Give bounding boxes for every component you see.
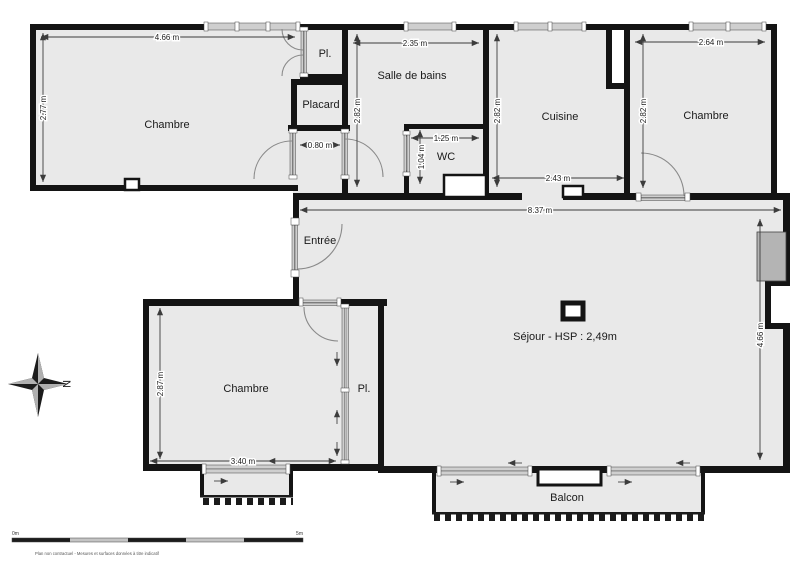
dim-sdb-width: 2.35 m [403, 39, 428, 48]
footer-disclaimer: Plan non contractuel - Mesures et surfac… [35, 551, 160, 556]
label-closet-top: Pl. [319, 48, 332, 60]
dim-chambre-tl-width: 4.66 m [155, 33, 180, 42]
compass: N [8, 353, 72, 417]
label-salle-de-bains: Salle de bains [377, 70, 447, 82]
wc-sliding-door [403, 131, 410, 176]
sdb-floor [346, 27, 486, 197]
scale-end-label: 5m [296, 531, 303, 537]
dim-sdb-height: 2.82 m [353, 98, 362, 123]
dim-cuisine-height: 2.82 m [493, 98, 502, 123]
label-cuisine: Cuisine [542, 111, 579, 123]
small-balcony-floor [202, 471, 293, 497]
window-chambre-tl [204, 22, 300, 31]
scale-start-label: 0m [12, 531, 19, 537]
dim-chambre-tr-width: 2.64 m [699, 38, 724, 47]
radiator [757, 232, 786, 281]
label-closet-bl: Pl. [358, 383, 371, 395]
label-placard: Placard [302, 99, 339, 111]
floor-plan: 4.66 m 2.77 m 0.80 m 2.35 m 2.82 m 1.25 … [0, 0, 800, 566]
label-sejour: Séjour - HSP : 2,49m [513, 331, 617, 343]
dim-wc-width: 1.25 m [434, 134, 459, 143]
label-balcon: Balcon [550, 492, 584, 504]
chambre-tl-chimney [125, 179, 139, 190]
label-chambre-tr: Chambre [683, 110, 728, 122]
dim-wc-height: 1.04 m [417, 144, 426, 169]
dim-cuisine-width: 2.43 m [546, 174, 571, 183]
floor-plan-page: 4.66 m 2.77 m 0.80 m 2.35 m 2.82 m 1.25 … [0, 0, 800, 566]
sejour-threshold-recess [538, 469, 601, 485]
chambre-tl-floor [33, 27, 300, 188]
dim-sejour-height: 4.66 m [756, 322, 765, 347]
dim-chambre-bl-height: 2.87 m [156, 371, 165, 396]
label-chambre-bl: Chambre [223, 383, 268, 395]
window-sdb [404, 22, 456, 31]
dim-passage-width: 0.80 m [308, 141, 333, 150]
scale-bar: 0m 5m [12, 531, 303, 542]
small-balcony-railing [202, 497, 293, 505]
kitchen-duct [563, 186, 583, 197]
dim-chambre-tr-height: 2.82 m [639, 98, 648, 123]
balcon-railing [434, 514, 704, 522]
wc-duct [444, 175, 486, 197]
column [563, 303, 583, 319]
vestibule-floor [293, 128, 346, 196]
compass-north-label: N [60, 380, 72, 388]
label-chambre-tl: Chambre [144, 119, 189, 131]
duct-chase [611, 27, 625, 85]
dim-chambre-bl-width: 3.40 m [231, 457, 256, 466]
label-wc: WC [437, 151, 455, 163]
label-entree: Entrée [304, 235, 336, 247]
dim-chambre-tl-height: 2.77 m [39, 95, 48, 120]
window-chambre-tr [689, 22, 766, 31]
window-cuisine [514, 22, 586, 31]
dim-sejour-width: 8.37 m [528, 206, 553, 215]
